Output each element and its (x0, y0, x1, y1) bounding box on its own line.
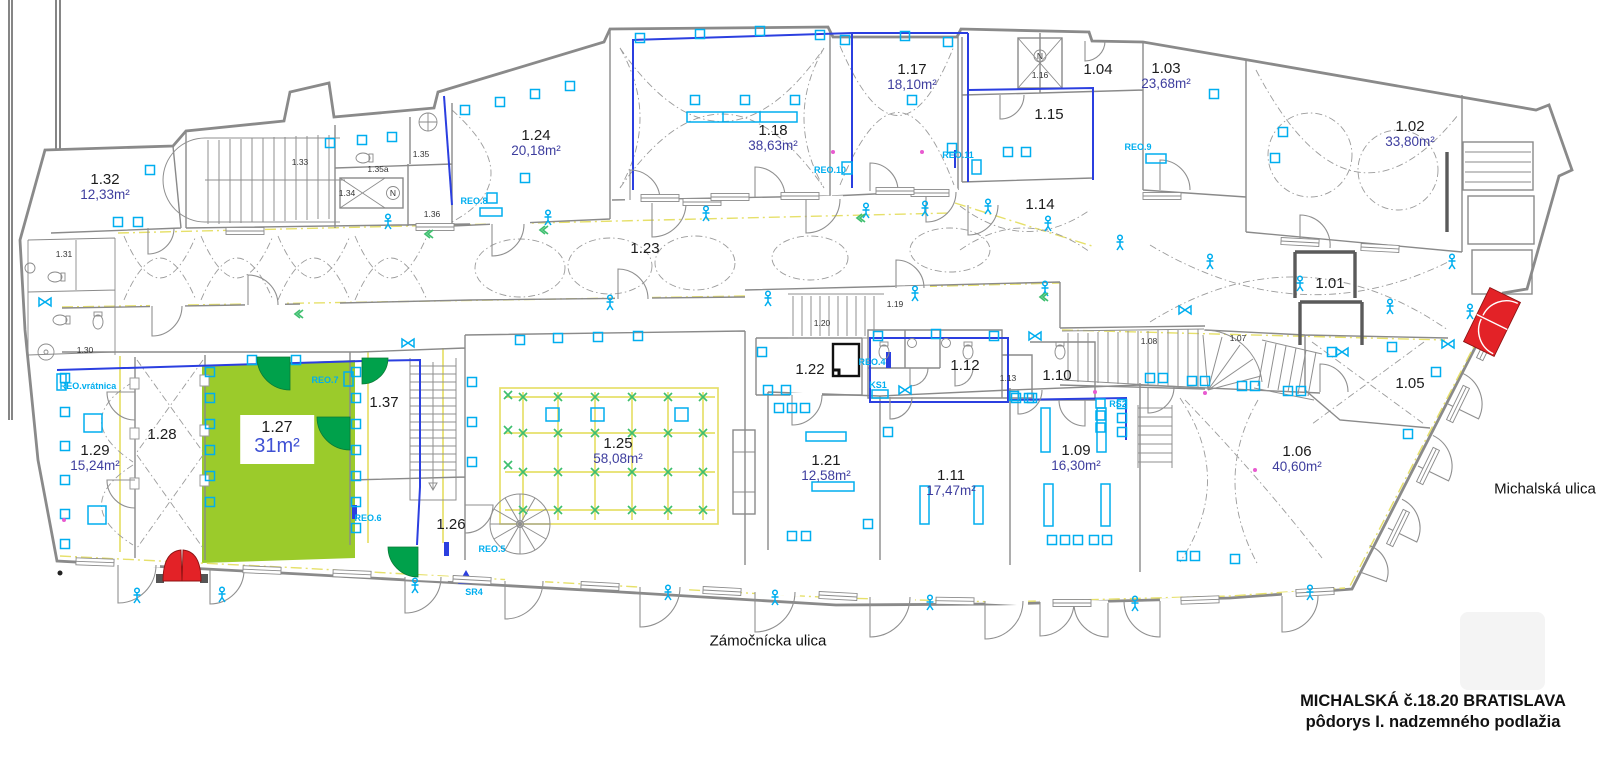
room-number: 1.23 (630, 241, 659, 257)
tech-label-reo-vr-tnica: REO.vrátnica (60, 381, 117, 391)
room-area: 58,08m² (593, 452, 643, 467)
room-number: 1.21 (801, 453, 851, 469)
room-number: 1.24 (511, 128, 561, 144)
small-label: 1.13 (1000, 373, 1017, 383)
small-label: N (390, 188, 396, 198)
room-label-1-03: 1.0323,68m² (1141, 61, 1191, 92)
room-area: 33,80m² (1385, 135, 1435, 150)
street-label-zamocnicka: Zámočnícka ulica (710, 633, 827, 650)
small-label: 1.36 (424, 209, 441, 219)
room-area: 12,58m² (801, 469, 851, 484)
distribution-box (833, 344, 859, 376)
room-label-1-01: 1.01 (1315, 276, 1344, 292)
room-number: 1.25 (593, 436, 643, 452)
room-number: 1.18 (748, 123, 798, 139)
room-number: 1.10 (1042, 368, 1071, 384)
tech-label-reo-4: REO.4 (858, 357, 885, 367)
room-number: 1.27 (254, 419, 300, 436)
room-label-1-04: 1.04 (1083, 62, 1112, 78)
floorplan-drawing (0, 0, 1617, 769)
room-number: 1.11 (926, 468, 976, 484)
room-number: 1.32 (80, 172, 130, 188)
room-label-1-09: 1.0916,30m² (1051, 443, 1101, 474)
room-label-1-12: 1.12 (950, 358, 979, 374)
room-area: 18,10m² (887, 78, 937, 93)
room-label-1-02: 1.0233,80m² (1385, 119, 1435, 150)
tech-label-reo-8: REO.8 (460, 196, 487, 206)
room-area: 15,24m² (70, 459, 120, 474)
small-label: N (1037, 51, 1043, 61)
room-number: 1.06 (1272, 444, 1322, 460)
room-number: 1.29 (70, 443, 120, 459)
tech-label-reo-9: REO.9 (1124, 142, 1151, 152)
room-label-1-18: 1.1838,63m² (748, 123, 798, 154)
room-number: 1.12 (950, 358, 979, 374)
small-label: 1.08 (1141, 336, 1158, 346)
room-number: 1.28 (147, 427, 176, 443)
floorplan-canvas: 1.3212,33m²1.2420,18m²1.1838,63m²1.1718,… (0, 0, 1617, 769)
room-area: 23,68m² (1141, 77, 1191, 92)
room-number: 1.37 (369, 395, 398, 411)
room-label-1-25: 1.2558,08m² (593, 436, 643, 467)
room-area: 31m² (254, 436, 300, 458)
small-label: 1.20 (814, 318, 831, 328)
room-label-1-10: 1.10 (1042, 368, 1071, 384)
tech-label-reo-5: REO.5 (478, 544, 505, 554)
small-label: 1.16 (1032, 70, 1049, 80)
room-area: 17,47m² (926, 484, 976, 499)
room-area: 20,18m² (511, 144, 561, 159)
room-number: 1.04 (1083, 62, 1112, 78)
room-label-1-26: 1.26 (436, 517, 465, 533)
room-label-1-11: 1.1117,47m² (926, 468, 976, 499)
title-line2: pôdorys I. nadzemného podlažia (1300, 712, 1566, 733)
small-label: 1.19 (887, 299, 904, 309)
room-label-1-21: 1.2112,58m² (801, 453, 851, 484)
room-label-1-27: 1.2731m² (240, 415, 314, 464)
small-label: 1.07 (1230, 333, 1247, 343)
room-label-1-29: 1.2915,24m² (70, 443, 120, 474)
room-number: 1.09 (1051, 443, 1101, 459)
room-label-1-32: 1.3212,33m² (80, 172, 130, 203)
room-label-1-28: 1.28 (147, 427, 176, 443)
room-number: 1.17 (887, 62, 937, 78)
room-label-1-24: 1.2420,18m² (511, 128, 561, 159)
street-label-michalska: Michalská ulica (1494, 481, 1596, 498)
smudge (1460, 612, 1545, 690)
room-label-1-06: 1.0640,60m² (1272, 444, 1322, 475)
room-label-1-23: 1.23 (630, 241, 659, 257)
room-number: 1.15 (1034, 107, 1063, 123)
room-area: 40,60m² (1272, 460, 1322, 475)
room-label-1-05: 1.05 (1395, 376, 1424, 392)
room-number: 1.01 (1315, 276, 1344, 292)
tech-label-reo-10: REO.10 (814, 165, 846, 175)
room-number: 1.03 (1141, 61, 1191, 77)
title-line1: MICHALSKÁ č.18.20 BRATISLAVA (1300, 691, 1566, 712)
tech-label-rs2: RS2 (1109, 399, 1127, 409)
tech-label-reo-7: REO.7 (311, 375, 338, 385)
room-label-1-22: 1.22 (795, 362, 824, 378)
room-number: 1.14 (1025, 197, 1054, 213)
tech-label-ks1: KS1 (869, 380, 887, 390)
room-label-1-17: 1.1718,10m² (887, 62, 937, 93)
room-area: 38,63m² (748, 139, 798, 154)
small-label: 1.35a (367, 164, 388, 174)
tech-label-reo-11: REO.11 (942, 150, 974, 160)
room-label-1-14: 1.14 (1025, 197, 1054, 213)
room-label-1-37: 1.37 (369, 395, 398, 411)
room-number: 1.22 (795, 362, 824, 378)
small-label: 1.33 (292, 157, 309, 167)
small-label: 1.35 (413, 149, 430, 159)
room-area: 16,30m² (1051, 459, 1101, 474)
room-area: 12,33m² (80, 188, 130, 203)
tech-label-sr4: SR4 (465, 587, 483, 597)
room-number: 1.02 (1385, 119, 1435, 135)
small-label: 1.30 (77, 345, 94, 355)
room-number: 1.05 (1395, 376, 1424, 392)
room-number: 1.26 (436, 517, 465, 533)
room-label-1-15: 1.15 (1034, 107, 1063, 123)
small-label: 1.31 (56, 249, 73, 259)
tech-label-reo-6: REO.6 (354, 513, 381, 523)
small-label: 1.34 (339, 188, 356, 198)
title-block: MICHALSKÁ č.18.20 BRATISLAVA pôdorys I. … (1300, 691, 1566, 732)
